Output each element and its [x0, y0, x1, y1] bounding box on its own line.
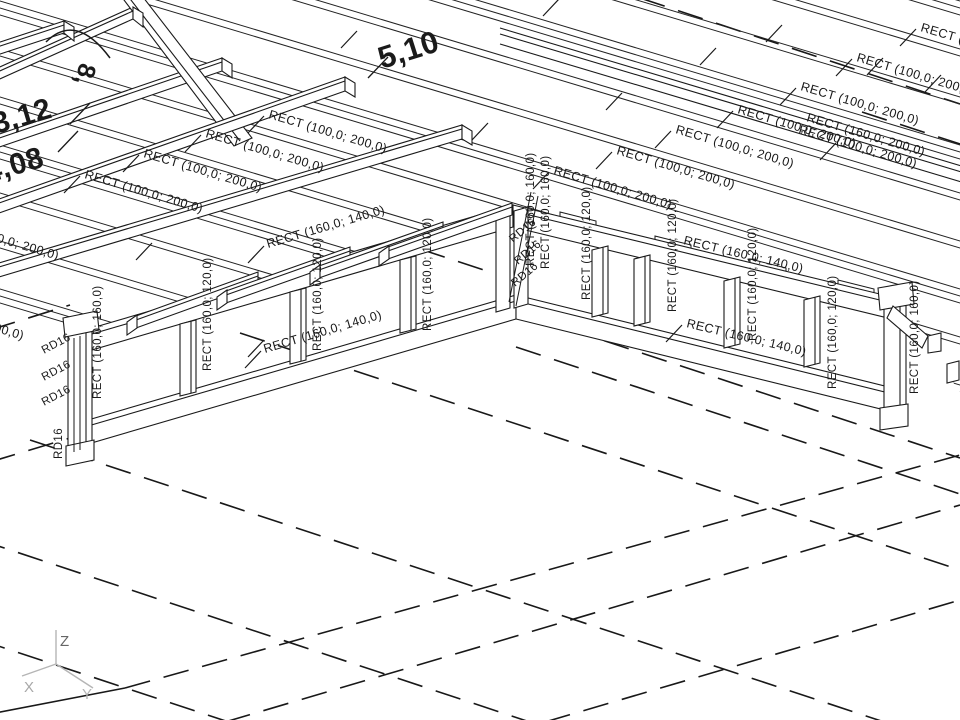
- tick-mark: [136, 243, 152, 260]
- member-label: RECT (160,0; 160,0): [92, 286, 104, 400]
- member-label: RECT (160,0; 120,0): [581, 187, 593, 301]
- tick-mark: [700, 48, 716, 65]
- member-label: RECT (100,0; 200,0): [552, 163, 674, 211]
- joist-line[interactable]: [0, 0, 960, 215]
- dimension-text: 8,: [69, 60, 102, 88]
- member-label: RECT (100,0; 200,0): [83, 167, 205, 215]
- tick-mark: [606, 93, 622, 110]
- wall-post[interactable]: [804, 296, 820, 367]
- wall-post[interactable]: [180, 320, 196, 396]
- wall-post[interactable]: [592, 246, 608, 317]
- axis-label-x: X: [24, 679, 34, 696]
- member-label: RECT (160,0; 120,0): [827, 276, 839, 390]
- tick-mark: [341, 31, 357, 48]
- wall-post[interactable]: [290, 288, 306, 364]
- leader-tick: [717, 111, 733, 128]
- dimension-text: 5,10: [374, 24, 444, 76]
- axis-label-y: Y: [82, 686, 92, 703]
- wireframe-scene[interactable]: Z X Y: [0, 0, 960, 720]
- leader-tick: [245, 351, 261, 368]
- wall-post[interactable]: [400, 256, 416, 333]
- axis-indicator: Z X Y: [22, 630, 93, 703]
- corner-post[interactable]: [496, 211, 510, 312]
- leader-tick: [596, 152, 612, 169]
- axis-label-z: Z: [60, 633, 69, 650]
- wall-frames[interactable]: [63, 203, 959, 466]
- member-label: RECT (100,0; 200,0): [919, 20, 960, 68]
- leader-tick: [248, 246, 264, 263]
- member-label: RECT (160,0; 120,0): [747, 228, 759, 342]
- member-label: RECT (100,0; 200,0): [674, 122, 796, 170]
- tick-mark: [543, 0, 559, 16]
- member-label: RECT (160,0; 120,0): [667, 199, 679, 313]
- tick-mark: [766, 25, 782, 42]
- member-label: RECT (100,0; 200,0): [615, 143, 737, 191]
- member-label: RD16: [53, 428, 65, 459]
- member-label: RECT (160,0; 160,0): [540, 156, 552, 270]
- wall-post[interactable]: [634, 255, 650, 326]
- tick-mark: [472, 123, 488, 140]
- cad-viewport-3d[interactable]: Z X Y: [0, 0, 960, 720]
- leader-tick: [655, 131, 671, 148]
- member-label: RECT (160,0; 120,0): [202, 258, 214, 372]
- member-label: RECT (100,0; 200,0): [204, 126, 326, 174]
- member-label: RECT (160,0; 120,0): [422, 218, 434, 332]
- member-label: RECT (100,0; 200,0): [0, 294, 26, 342]
- member-label: RECT (160,0; 120,0): [312, 238, 324, 352]
- dimension-text: 4,08: [0, 141, 48, 190]
- member-label: RECT (160,0; 140,0): [265, 203, 387, 251]
- member-label: RECT (160,0; 160,0): [909, 281, 921, 395]
- ground-edge-line: [0, 688, 125, 713]
